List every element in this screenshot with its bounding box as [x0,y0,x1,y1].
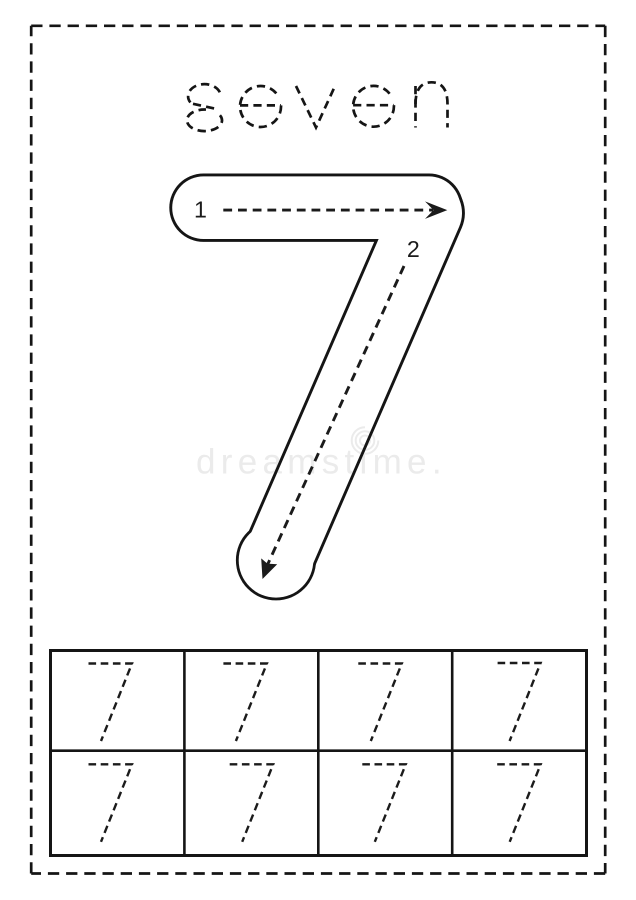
svg-text:2: 2 [407,236,420,262]
svg-text:1: 1 [194,197,207,223]
svg-text:dreamstime.: dreamstime. [196,443,447,482]
